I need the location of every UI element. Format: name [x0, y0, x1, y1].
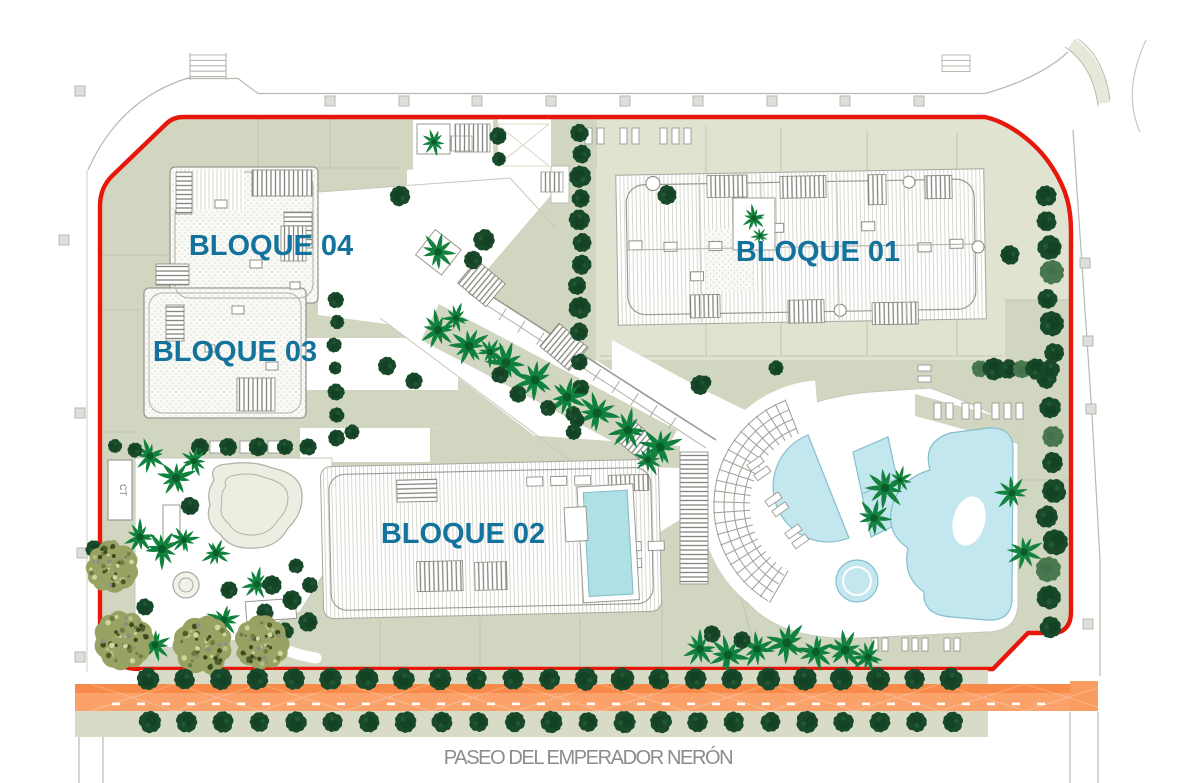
svg-text:BLOQUE 01: BLOQUE 01: [736, 236, 900, 268]
svg-text:BLOQUE 02: BLOQUE 02: [381, 518, 545, 550]
svg-text:PASEO DEL EMPERADOR NERÓN: PASEO DEL EMPERADOR NERÓN: [444, 746, 732, 769]
svg-text:BLOQUE 04: BLOQUE 04: [189, 230, 353, 262]
svg-text:CT: CT: [118, 484, 128, 496]
svg-text:BLOQUE 03: BLOQUE 03: [153, 336, 317, 368]
